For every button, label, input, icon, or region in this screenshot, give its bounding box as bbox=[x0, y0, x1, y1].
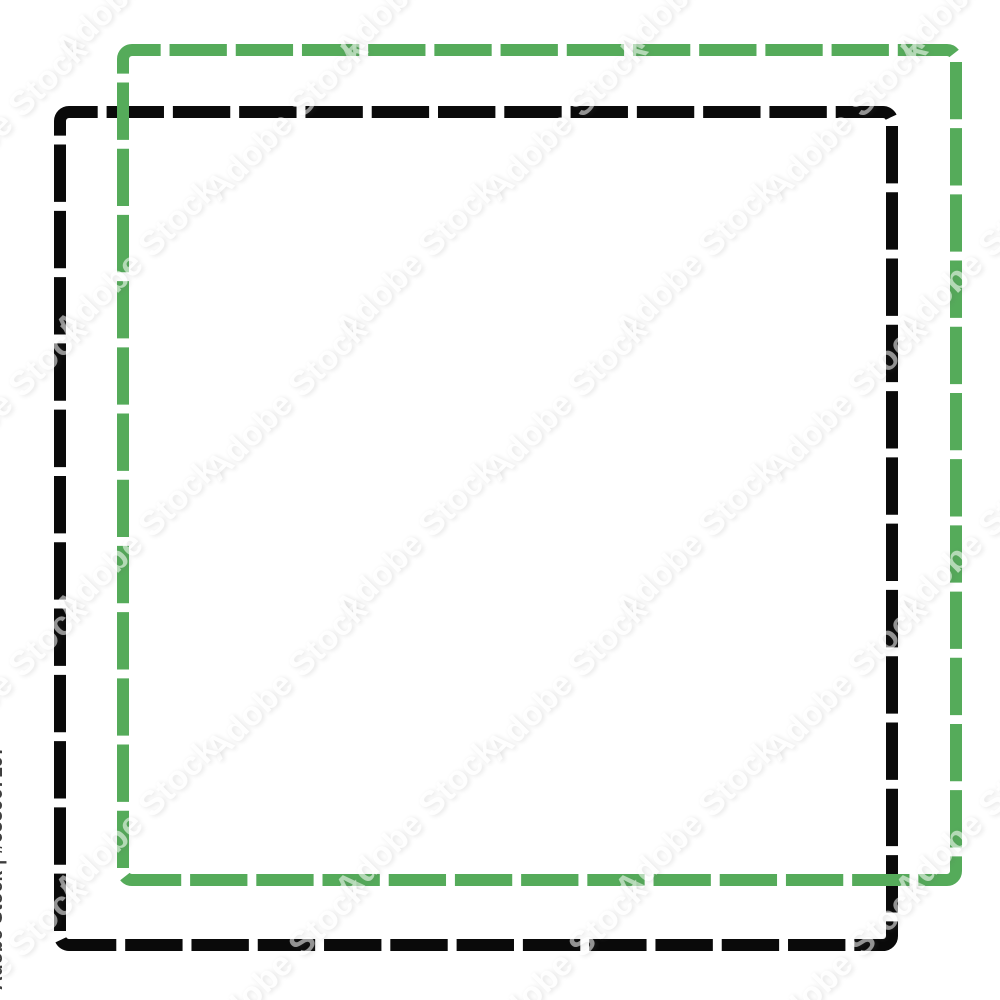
stock-image-page: { "image": { "background_color": "#fffff… bbox=[0, 0, 1000, 1000]
black-dashed-square bbox=[60, 112, 892, 945]
green-dashed-square bbox=[123, 50, 956, 880]
dashed-squares-artwork bbox=[0, 0, 1000, 1000]
stock-credit-text: Adobe Stock | #633967197 bbox=[0, 745, 8, 990]
